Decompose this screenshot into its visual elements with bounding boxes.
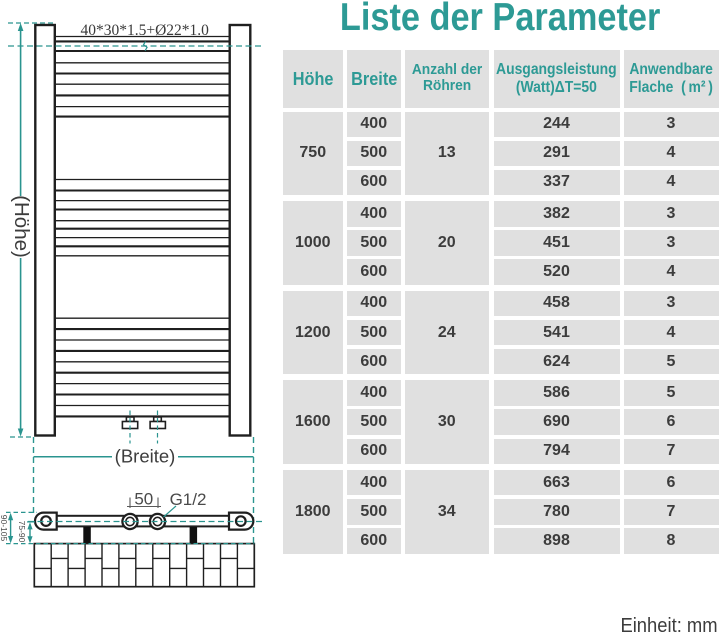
svg-text:40*30*1.5+Ø22*1.0: 40*30*1.5+Ø22*1.0 bbox=[80, 22, 209, 39]
svg-text:50: 50 bbox=[134, 490, 153, 509]
svg-text:90-105: 90-105 bbox=[0, 515, 9, 542]
svg-text:75-90: 75-90 bbox=[17, 521, 27, 543]
svg-text:(Breite): (Breite) bbox=[115, 445, 176, 466]
svg-text:(Höhe): (Höhe) bbox=[10, 195, 33, 258]
